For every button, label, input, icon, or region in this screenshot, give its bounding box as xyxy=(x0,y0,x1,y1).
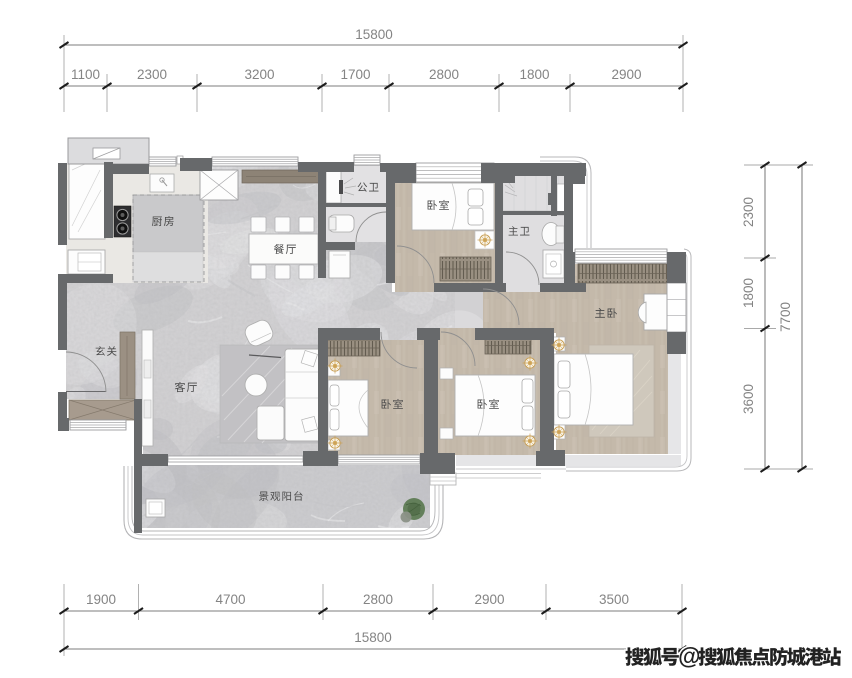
svg-text:2800: 2800 xyxy=(363,592,393,607)
svg-text:1100: 1100 xyxy=(71,67,100,82)
svg-text:1700: 1700 xyxy=(340,67,370,82)
svg-text:1900: 1900 xyxy=(86,592,116,607)
svg-text:15800: 15800 xyxy=(355,27,393,42)
svg-text:3200: 3200 xyxy=(244,67,274,82)
svg-text:15800: 15800 xyxy=(354,630,392,645)
svg-text:2900: 2900 xyxy=(611,67,641,82)
svg-text:1800: 1800 xyxy=(741,278,756,308)
svg-text:3500: 3500 xyxy=(599,592,629,607)
svg-text:2300: 2300 xyxy=(741,197,756,227)
svg-text:2800: 2800 xyxy=(429,67,459,82)
svg-text:2900: 2900 xyxy=(474,592,504,607)
svg-text:4700: 4700 xyxy=(215,592,245,607)
svg-text:1800: 1800 xyxy=(519,67,549,82)
svg-text:2300: 2300 xyxy=(137,67,167,82)
svg-text:7700: 7700 xyxy=(778,302,793,332)
svg-text:@: @ xyxy=(678,643,700,669)
svg-text:3600: 3600 xyxy=(741,384,756,414)
